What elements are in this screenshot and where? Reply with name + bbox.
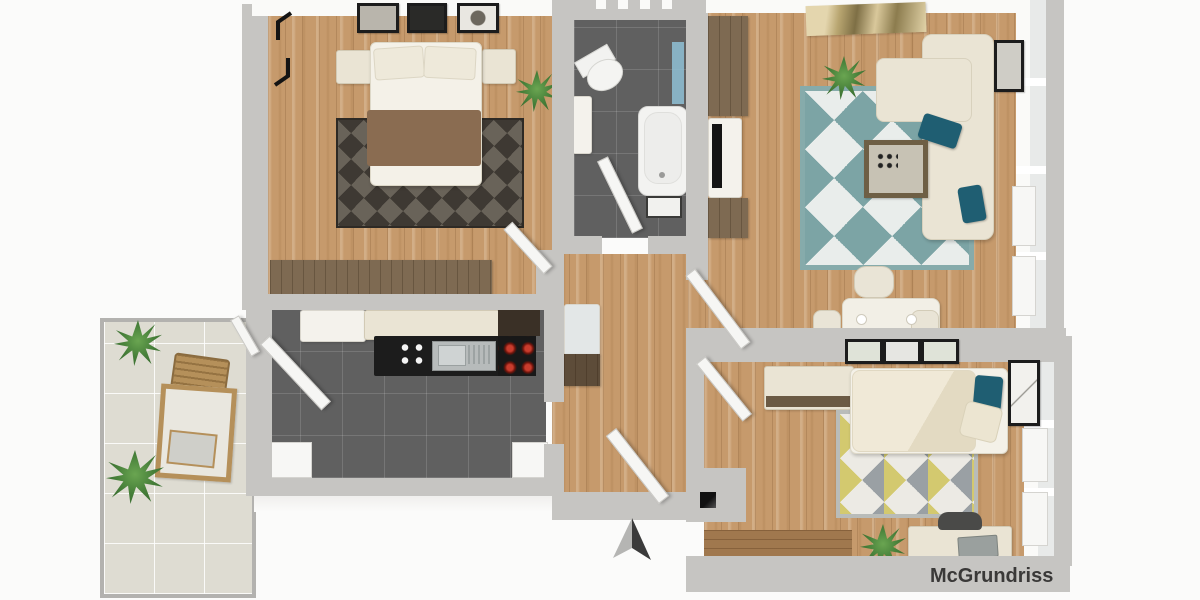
living-radiator-1 [1012,186,1036,246]
dining-plate-right [906,314,917,325]
bedroom2-floor-border [704,530,852,558]
rotation-marker-icon [272,10,294,88]
living-wardrobe [708,16,748,116]
living-radiator-2 [1012,256,1036,316]
living-right-picture [994,40,1024,92]
partition-window-1 [845,339,883,364]
dining-plate-left [856,314,867,325]
partition-window-2 [883,339,921,364]
north-arrow-icon [608,516,656,560]
watermark: McGrundriss [930,562,1052,590]
hall-console [564,354,600,386]
bedroom2-sill-2 [1022,492,1048,546]
tv-screen [712,124,722,188]
kitchen-cabinet-left [300,310,366,342]
wall-kitchen-hall-upper [544,310,564,402]
living-sideboard [708,198,748,238]
bathroom-vanity [572,96,592,154]
coffee-table-decor [876,152,898,170]
bath-mat [646,196,682,218]
hall-mirror [564,304,600,356]
wall-bathroom-bottom-left [552,236,602,254]
bedroom2-right-picture [1008,360,1040,426]
kitchen-hob-burners [398,341,426,367]
wall-bathroom-top-notch-2 [618,0,628,9]
floorplan-3d-render: McGrundriss [0,0,1200,600]
bedroom1-picture-1 [357,3,399,33]
partition-window-3 [921,339,959,364]
wall-bedroom1-bathroom [552,0,574,252]
kitchen-cooktop-red [498,336,536,376]
entry-door-marker [700,492,716,508]
wall-kitchen-bottom-outer [254,496,566,512]
wall-bedroom2-right-outer [1054,336,1072,566]
nightstand-right [482,49,516,84]
bathtub-drain [659,172,665,178]
living-window-mullion-2 [1016,166,1046,174]
wall-bathroom-living [686,0,708,250]
kitchen-radiator-right [512,442,548,478]
sofa-chaise [876,58,972,122]
bed-pillow-right [423,46,477,81]
bedroom1-picture-3 [457,3,499,33]
nightstand-left [336,50,372,84]
wall-bedroom1-left [242,4,268,310]
bedroom1-picture-2 [407,3,447,33]
dining-chair-top [854,266,894,298]
balcony-chair-bottom [166,430,217,469]
bedroom2-sill-1 [1022,428,1048,482]
shower-glass-panel [672,42,684,104]
living-wall-art [806,2,927,36]
kitchen-sink-drainboard [468,345,490,364]
wall-entry-block [686,468,746,522]
wall-living-right-outer [1046,0,1064,334]
wall-bedroom1-bottom [242,294,564,310]
wall-bathroom-top-notch-3 [640,0,650,9]
desk-chair [938,512,982,530]
wall-bathroom-top-notch-1 [596,0,606,9]
kitchen-sink-basin [438,345,466,366]
single-bed-duvet [852,370,976,452]
bed-blanket [367,110,481,166]
bed-pillow-left [373,45,425,80]
wall-bedroom1-top [252,0,556,16]
bedroom2-dresser-front [766,396,850,407]
wall-bathroom-top-notch-4 [662,0,672,9]
wall-kitchen-bottom [246,478,564,496]
wall-bathroom-top [552,0,708,20]
bedroom1-dresser [270,260,492,296]
